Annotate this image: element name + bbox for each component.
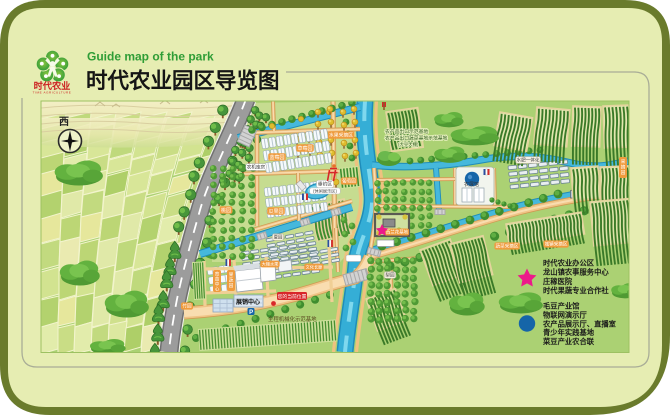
svg-text:心: 心	[215, 286, 220, 292]
svg-text:您的当前位置: 您的当前位置	[278, 293, 307, 300]
svg-text:青少年实践基地: 青少年实践基地	[543, 328, 595, 337]
svg-text:大棚水果: 大棚水果	[262, 261, 280, 268]
svg-text:全程机械化示范基地: 全程机械化示范基地	[268, 315, 317, 323]
svg-text:庄稼医院: 庄稼医院	[543, 277, 573, 286]
svg-text:时代果蔬专业合作社: 时代果蔬专业合作社	[543, 286, 609, 295]
svg-text:农机库房: 农机库房	[247, 164, 266, 171]
svg-text:蓝莓园: 蓝莓园	[269, 154, 284, 161]
svg-text:西: 西	[59, 116, 69, 128]
svg-text:Guide map of the park: Guide map of the park	[87, 50, 214, 64]
svg-text:(休闲娱乐区): (休闲娱乐区)	[313, 188, 337, 195]
svg-text:农产品展示厅、直播室: 农产品展示厅、直播室	[542, 319, 617, 328]
svg-text:西兰花基地: 西兰花基地	[386, 229, 409, 236]
svg-text:草莓园: 草莓园	[297, 145, 312, 152]
svg-text:物联网演示厅: 物联网演示厅	[543, 310, 587, 319]
svg-text:农产品出口示范基地: 农产品出口示范基地	[385, 128, 428, 135]
svg-text:瓜果园: 瓜果园	[268, 209, 283, 215]
svg-text:毛豆产业馆: 毛豆产业馆	[543, 302, 579, 311]
svg-text:农展馆: 农展馆	[464, 181, 479, 188]
svg-text:龙山镇农事服务中心: 龙山镇农事服务中心	[542, 268, 609, 277]
svg-text:桃园: 桃园	[221, 207, 231, 214]
svg-text:竹园: 竹园	[182, 303, 192, 310]
svg-text:展销中心: 展销中心	[236, 298, 260, 306]
svg-text:蔬菜采摘区: 蔬菜采摘区	[496, 243, 519, 250]
svg-text:文化长廊: 文化长廊	[306, 264, 323, 271]
svg-text:时代农业: 时代农业	[34, 80, 71, 91]
svg-text:(大豆大棚): (大豆大棚)	[398, 141, 419, 148]
svg-text:水果采摘区: 水果采摘区	[329, 132, 353, 139]
svg-text:时代农业办公区: 时代农业办公区	[543, 259, 595, 268]
svg-text:城镇采摘区: 城镇采摘区	[545, 241, 568, 248]
svg-text:TIME AGRICULTURE: TIME AGRICULTURE	[33, 91, 72, 95]
svg-text:P: P	[249, 310, 253, 316]
svg-text:菜豆产业农合联: 菜豆产业农合联	[542, 337, 595, 346]
svg-text:梨园: 梨园	[385, 272, 395, 279]
svg-text:垂钓区: 垂钓区	[318, 181, 333, 188]
svg-text:水肥一体化: 水肥一体化	[517, 157, 540, 164]
svg-text:时代农业园区导览图: 时代农业园区导览图	[86, 68, 280, 93]
svg-text:农产品出口蔬菜基地示范基地: 农产品出口蔬菜基地示范基地	[385, 135, 448, 142]
svg-text:葡萄园: 葡萄园	[342, 178, 356, 185]
